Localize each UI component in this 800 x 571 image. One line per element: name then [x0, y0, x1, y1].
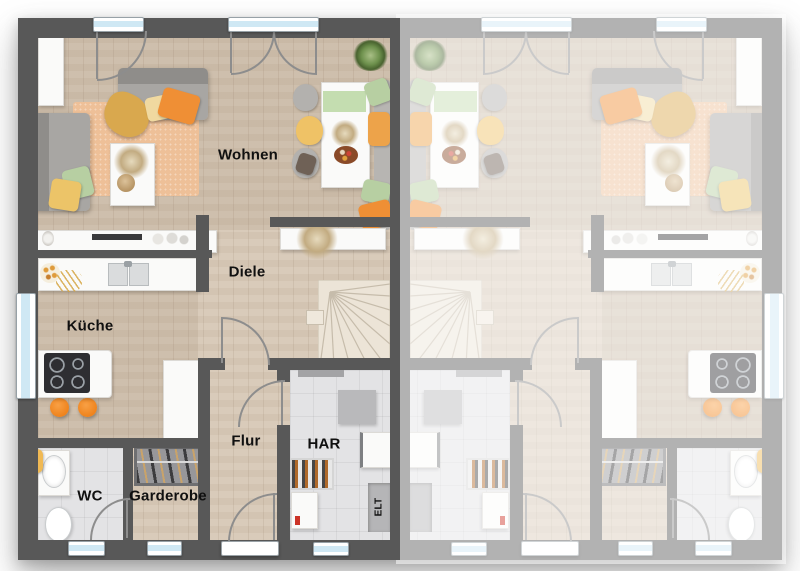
stairs-first-tread	[306, 310, 324, 325]
dining-chair-gray-1	[482, 84, 507, 111]
wall-corridor-top	[575, 358, 602, 370]
door-leaf-har	[517, 380, 519, 425]
bar-stool-1	[50, 398, 69, 417]
pillow-brown-chair	[482, 152, 505, 177]
wall-left	[18, 18, 38, 560]
door-leaf-terrace-2b	[315, 31, 317, 73]
pillow-green-bench-2	[408, 178, 440, 205]
stairs-first-tread	[476, 310, 494, 325]
wall-living-hall	[270, 217, 390, 227]
window-wc	[68, 541, 105, 556]
door-swing-terrace-1	[653, 31, 703, 81]
window-har	[313, 542, 349, 556]
door-swing-wc	[670, 498, 710, 540]
door-leaf-wc	[126, 498, 128, 538]
floor-living-tint	[410, 38, 762, 230]
unit-left: Wohnen Diele Küche Flur HAR WC Garderobe…	[18, 18, 400, 560]
har-wall-shelf	[456, 368, 502, 377]
floorplan: Wohnen Diele Küche Flur HAR WC Garderobe…	[18, 18, 782, 560]
wheat-decor	[56, 270, 82, 292]
wc-toilet	[728, 507, 755, 542]
stairs	[410, 280, 482, 366]
dried-plant-coffee-table	[113, 144, 150, 179]
coffee-table	[645, 143, 690, 206]
door-swing-hall-corridor	[530, 317, 578, 365]
sideboard-roll	[746, 231, 758, 246]
door-swing-entrance	[523, 493, 572, 542]
wall-party	[400, 18, 410, 560]
cooktop	[710, 353, 756, 393]
wall-living-hall	[410, 217, 530, 227]
label-diele: Diele	[229, 264, 266, 281]
window-har	[451, 542, 487, 556]
floor-har-tile	[410, 370, 510, 540]
throw-blanket	[643, 86, 702, 143]
window-kitchen	[764, 293, 784, 399]
plant-living-corner	[352, 40, 389, 71]
label-flur: Flur	[231, 433, 260, 450]
tall-cabinet-living	[38, 34, 64, 106]
entrance-door	[221, 541, 279, 556]
tv-sideboard	[583, 230, 770, 253]
wall-kitchen-stub	[196, 215, 209, 292]
dining-bench	[410, 80, 426, 230]
sideboard-decor	[610, 231, 650, 247]
pillow-pale-yellow	[626, 94, 656, 123]
har-appliance-white	[408, 432, 440, 468]
wall-kitchen-living	[38, 250, 212, 258]
har-storage-shelf	[466, 458, 510, 490]
wall-kitchen-living	[588, 250, 762, 258]
tall-cabinet-living	[736, 34, 762, 106]
label-garderobe: Garderobe	[129, 488, 207, 505]
har-appliance-gray	[338, 390, 376, 424]
plant-living-corner	[411, 40, 448, 71]
wall-wc-wardrobe	[667, 448, 677, 540]
floor-wood	[410, 38, 762, 540]
window-wardrobe	[147, 541, 182, 556]
label-wc: WC	[77, 488, 102, 505]
decor-tray	[117, 174, 135, 192]
sideboard-decor	[150, 231, 190, 247]
door-leaf-har	[281, 380, 283, 425]
pillow-green-bench-top	[407, 77, 438, 108]
door-swing-terrace-2b	[483, 31, 527, 75]
label-kueche: Küche	[67, 318, 114, 335]
door-leaf-entrance	[525, 493, 527, 540]
tv	[658, 234, 708, 240]
wheat-decor	[718, 270, 744, 292]
pillow-orange-bench-1	[410, 112, 432, 146]
label-wohnen: Wohnen	[218, 147, 278, 164]
pillow-orange-bench-1	[368, 112, 390, 146]
dining-table	[430, 82, 479, 188]
fruit-bowl	[442, 146, 466, 164]
dried-plant-coffee-table	[650, 144, 687, 179]
floorplan-page: Wohnen Diele Küche Flur HAR WC Garderobe…	[0, 0, 800, 571]
floor-wc-tile	[677, 448, 762, 540]
door-leaf-terrace-2a	[568, 31, 570, 73]
door-leaf-terrace-1	[702, 31, 704, 79]
fruit-bowl	[334, 146, 358, 164]
kitchen-sink-1	[672, 263, 692, 286]
wc-towel	[757, 449, 770, 473]
wc-washbasin	[734, 455, 758, 488]
har-cabinet-low	[482, 492, 509, 529]
wall-party	[390, 18, 400, 560]
wall-top	[18, 18, 400, 38]
wall-wc-top	[595, 438, 782, 448]
door-swing-terrace-2a	[525, 31, 569, 75]
rug	[601, 102, 727, 196]
window-terrace-1	[656, 17, 707, 32]
hall-shelf	[414, 228, 520, 250]
door-leaf-terrace-2b	[483, 31, 485, 73]
wall-har-left-lower	[277, 425, 290, 540]
wall-har-left-upper	[510, 370, 523, 382]
door-swing-har	[515, 380, 562, 427]
kitchen-tall-cabinet	[163, 360, 201, 446]
floor-kitchen-tint	[602, 258, 762, 438]
sofa-left	[710, 113, 767, 211]
dining-chair-yellow	[296, 116, 323, 145]
wall-bottom	[400, 540, 782, 560]
wardrobe-rail	[134, 446, 208, 486]
kitchen-faucet	[124, 261, 132, 267]
tv	[92, 234, 142, 240]
dining-chair-gray-1	[293, 84, 318, 111]
door-leaf-terrace-2a	[230, 31, 232, 73]
kitchen-sink-2	[129, 263, 149, 286]
sofa-top	[592, 68, 682, 120]
wall-top	[400, 18, 782, 38]
pillow-yellow-sofa	[718, 178, 752, 212]
bar-stool-2	[78, 398, 97, 417]
dining-chair-gray-2	[481, 148, 508, 178]
cooktop	[44, 353, 90, 393]
dried-plant-hall	[462, 218, 504, 260]
window-wc	[695, 541, 732, 556]
label-har: HAR	[307, 436, 340, 453]
wall-har-top	[410, 358, 532, 370]
decor-tray	[665, 174, 683, 192]
kitchen-island	[688, 350, 762, 398]
bar-stool-1	[731, 398, 750, 417]
wall-har-top	[268, 358, 390, 370]
elt-niche	[410, 483, 432, 532]
stairs	[318, 280, 390, 366]
wc-vanity	[730, 450, 762, 496]
har-storage-shelf	[290, 458, 334, 490]
cookie-plate	[740, 263, 760, 283]
har-red-item	[295, 516, 300, 525]
sideboard-roll	[42, 231, 54, 246]
kitchen-sink-2	[651, 263, 671, 286]
door-leaf-terrace-1	[96, 31, 98, 79]
har-appliance-white	[360, 432, 392, 468]
table-runner	[323, 91, 366, 112]
label-elt: ELT	[374, 498, 385, 517]
window-kitchen	[16, 293, 36, 399]
entrance-door	[521, 541, 579, 556]
bar-stool-2	[703, 398, 722, 417]
wall-har-left-lower	[510, 425, 523, 540]
wall-corridor-left	[198, 358, 210, 540]
kitchen-counter	[600, 258, 762, 291]
pillow-green-sofa	[705, 165, 739, 201]
window-terrace-2	[228, 17, 319, 32]
har-red-item	[500, 516, 505, 525]
window-wardrobe	[618, 541, 653, 556]
wardrobe-rail	[592, 446, 666, 486]
har-appliance-gray	[424, 390, 462, 424]
unit-right: Wohnen Diele Küche Flur HAR WC Garderobe…	[400, 18, 782, 560]
kitchen-tall-cabinet	[599, 360, 637, 446]
kitchen-faucet	[668, 261, 676, 267]
pillow-orange-sofa	[599, 86, 644, 125]
wall-wc-top	[18, 438, 205, 448]
door-leaf-hall-corridor	[577, 317, 579, 363]
wall-kitchen-stub	[591, 215, 604, 292]
wc-toilet	[45, 507, 72, 542]
dried-flowers-table	[440, 120, 470, 147]
door-leaf-wc	[672, 498, 674, 538]
window-terrace-2	[481, 17, 572, 32]
wc-washbasin	[42, 455, 66, 488]
door-leaf-hall-corridor	[221, 317, 223, 363]
dining-chair-yellow	[477, 116, 504, 145]
table-runner	[434, 91, 477, 112]
dried-flowers-table	[330, 120, 360, 147]
wall-corridor-left	[590, 358, 602, 540]
pillow-yellow-sofa	[48, 178, 82, 212]
window-terrace-1	[93, 17, 144, 32]
pillow-orange-bench-2	[405, 199, 442, 232]
door-leaf-entrance	[273, 493, 275, 540]
wall-left	[762, 18, 782, 560]
